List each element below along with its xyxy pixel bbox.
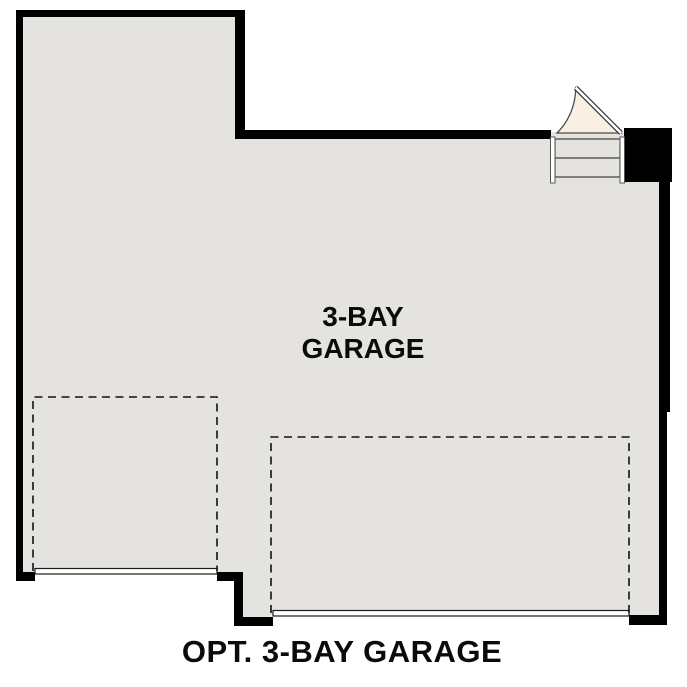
wall-right-lower bbox=[659, 412, 667, 625]
floor-plan-page: 3-BAY GARAGE OPT. 3-BAY GARAGE bbox=[0, 0, 687, 687]
wall-top-right-section bbox=[235, 130, 551, 139]
floor-plan-drawing: 3-BAY GARAGE OPT. 3-BAY GARAGE bbox=[0, 0, 687, 687]
wall-bottom-right bbox=[629, 615, 667, 625]
entry-steps-icon bbox=[551, 137, 625, 183]
garage-door-threshold-left bbox=[35, 569, 217, 575]
plan-caption: OPT. 3-BAY GARAGE bbox=[182, 634, 502, 669]
room-label-line2: GARAGE bbox=[302, 333, 425, 364]
wall-top-step-vertical bbox=[235, 10, 245, 139]
entry-door-swing-icon bbox=[557, 88, 621, 133]
wall-left bbox=[16, 10, 23, 581]
wall-mid-step-bottom bbox=[234, 617, 273, 626]
wall-top-left bbox=[16, 10, 245, 17]
wall-bottom-left-stub bbox=[16, 572, 35, 581]
door-jamb-left bbox=[551, 137, 556, 183]
wall-right-upper bbox=[659, 182, 670, 412]
wall-entry-corner-block bbox=[624, 128, 672, 182]
garage-door-threshold-right bbox=[273, 611, 629, 617]
room-label-line1: 3-BAY bbox=[322, 301, 404, 332]
door-jamb-right bbox=[620, 137, 625, 183]
